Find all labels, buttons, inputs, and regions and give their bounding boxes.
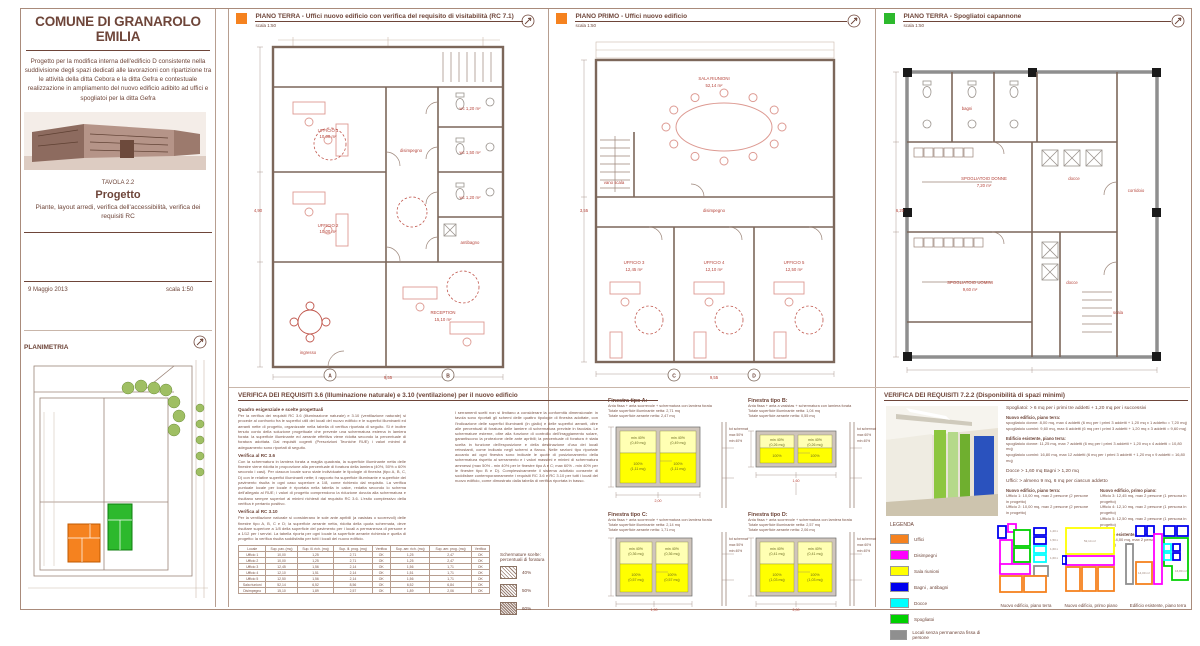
finestra-d-section: tot schermatura max 60% min 40%	[842, 528, 876, 610]
svg-text:52,14 m²: 52,14 m²	[1084, 539, 1096, 543]
svg-text:min 40%: min 40%	[629, 547, 644, 551]
mini-plan-1-drawing: 1,20 m²1,50 m²1,60 m²1,60 m²	[994, 522, 1058, 596]
svg-text:100%: 100%	[772, 454, 782, 458]
svg-text:UFFICIO 1: UFFICIO 1	[318, 128, 339, 133]
svg-text:(1,11 mq): (1,11 mq)	[670, 467, 685, 471]
svg-text:9,55: 9,55	[384, 375, 393, 380]
svg-text:(0,49 mq): (0,49 mq)	[630, 441, 645, 445]
svg-text:docce: docce	[1068, 176, 1080, 181]
svg-text:antibagno: antibagno	[461, 240, 480, 245]
svg-text:10,00 m²: 10,00 m²	[320, 134, 338, 139]
svg-text:min 40%: min 40%	[808, 547, 823, 551]
svg-text:16,80 m²: 16,80 m²	[1175, 569, 1187, 573]
tavola-block: TAVOLA 2.2 Progetto Piante, layout arred…	[24, 180, 212, 221]
svg-text:3,55: 3,55	[580, 208, 589, 213]
svg-text:vano scala: vano scala	[604, 180, 625, 185]
plan1-marker	[236, 13, 247, 24]
svg-text:12,50 m²: 12,50 m²	[786, 267, 804, 272]
svg-text:RECEPTION: RECEPTION	[430, 310, 455, 315]
legend-items: UfficiDisimpegniSala riunioniBagni , ant…	[890, 534, 990, 640]
svg-text:tot schermatura: tot schermatura	[857, 427, 876, 431]
schermatura-item: 60%	[500, 602, 600, 615]
verifica-722-title: VERIFICA DEI REQUISITI 7.2.2 (Disponibil…	[884, 392, 1188, 401]
plan3-drawing: bagniSPOGLIATOIO DONNE7,20 m²docceSPOGLI…	[882, 32, 1194, 384]
legend-swatch	[890, 534, 909, 544]
sheet-title: Progetto	[24, 189, 212, 201]
b1: Ufficio 3: 12,45 mq, max 2 persone (1 pe…	[1100, 493, 1188, 505]
svg-text:9,60 m²: 9,60 m²	[963, 287, 978, 292]
svg-text:15,10 m²: 15,10 m²	[435, 317, 453, 322]
svg-text:wc 1,20 m²: wc 1,20 m²	[459, 195, 481, 200]
intro-text: Per la verifica dei requisiti RC 3.6 (il…	[238, 413, 406, 450]
legend-item: Uffici	[890, 534, 990, 544]
svg-text:6,20: 6,20	[896, 208, 905, 213]
plan2-marker	[556, 13, 567, 24]
svg-text:100%: 100%	[810, 573, 820, 577]
divider-mid2	[875, 9, 876, 607]
legend-title: LEGENDA	[890, 522, 990, 528]
divider-left	[228, 9, 229, 607]
svg-text:UFFICIO 3: UFFICIO 3	[624, 260, 645, 265]
a2: Ufficio 2: 10,00 mq, max 2 persone (2 pe…	[1006, 504, 1092, 516]
plan1-drawing: A B UFFICIO 110,00 m²UFFICIO 210,00 m²di…	[238, 32, 544, 384]
svg-text:100%: 100%	[633, 462, 643, 466]
verifica-table-body: Ufficio 110,001,252,71OK1,252,47OKUffici…	[239, 552, 490, 594]
plan1-title: PIANO TERRA - Uffici nuovo edificio con …	[255, 13, 523, 22]
svg-text:(0,57 mq): (0,57 mq)	[664, 578, 679, 582]
svg-text:12,45 m²: 12,45 m²	[626, 267, 644, 272]
svg-text:wc 1,20 m²: wc 1,20 m²	[459, 106, 481, 111]
project-description: Progetto per la modifica interna dell'ed…	[24, 57, 212, 103]
svg-text:bagni: bagni	[962, 106, 973, 111]
mini-plan-1-caption: Nuovo edificio, piano terra	[994, 603, 1058, 608]
legend-swatch	[890, 550, 909, 560]
finestra-c-section: tot schermatura max 50% min 40%	[714, 528, 748, 610]
plan1-scale: scala 1:50	[255, 23, 523, 28]
svg-text:max 50%: max 50%	[729, 543, 743, 547]
svg-text:UFFICIO 5: UFFICIO 5	[784, 260, 805, 265]
intro-heading: Quadro esigenziale e scelte progettuali	[238, 407, 406, 412]
svg-text:(0,26 mq): (0,26 mq)	[769, 443, 784, 447]
svg-text:max 50%: max 50%	[729, 433, 743, 437]
finestra-c-diagram: min 40% (0,36 mq) 100% (0,57 mq) min 40%…	[608, 536, 708, 614]
north-arrow-icon	[1170, 13, 1186, 29]
svg-text:52,14 m²: 52,14 m²	[706, 83, 724, 88]
tavola-label: TAVOLA 2.2	[24, 180, 212, 186]
svg-text:docce: docce	[1066, 280, 1078, 285]
verifica-table-wrap: LocaleSup. pav. (mq)Sup. ill. rich. (mq)…	[238, 545, 490, 594]
plan3-header: PIANO TERRA - Spogliatoi capannone scala…	[884, 13, 1186, 32]
mini-plan-3-caption: Edificio esistente, piano terra	[1124, 603, 1192, 608]
plan3-title: PIANO TERRA - Spogliatoi capannone	[903, 13, 1171, 22]
svg-text:1,20 m²: 1,20 m²	[1050, 529, 1058, 533]
svg-text:min 40%: min 40%	[665, 547, 680, 551]
svg-text:100%: 100%	[673, 462, 683, 466]
svg-text:min 40%: min 40%	[770, 438, 785, 442]
plan2-drawing: C D SALA RIUNIONI52,14 m²vano scalaUFFIC…	[554, 32, 874, 384]
b2: Ufficio 4: 12,10 mq, max 2 persone (1 pe…	[1100, 504, 1188, 516]
svg-text:min 40%: min 40%	[631, 436, 646, 440]
svg-text:UFFICIO 2: UFFICIO 2	[318, 223, 339, 228]
plan1-header: PIANO TERRA - Uffici nuovo edificio con …	[236, 13, 536, 32]
legend-swatch	[890, 566, 909, 576]
svg-text:disimpegno: disimpegno	[703, 208, 726, 213]
title-block: COMUNE DI GRANAROLO EMILIA Progetto per …	[24, 14, 212, 103]
legend-swatch	[890, 582, 909, 592]
rc36-heading: Verifica al RC 3.6	[238, 453, 406, 458]
e2: spogliatoio uomini: 16,80 mq, max 12 add…	[1006, 452, 1188, 464]
sheet-date: 9 Maggio 2013	[28, 287, 68, 293]
legend-item: Sala riunioni	[890, 566, 990, 576]
mini-plan-2: 52,14 m² Nuovo edificio, primo piano	[1062, 522, 1120, 608]
svg-text:(0,57 mq): (0,57 mq)	[628, 578, 643, 582]
e1: spogliatoio donne: 11,25 mq, max 7 addet…	[1006, 441, 1188, 453]
mini-plan-1: 1,20 m²1,50 m²1,60 m²1,60 m² Nuovo edifi…	[994, 522, 1058, 608]
mini-plan-3: 14,00 m²16,80 m² Edificio esistente, pia…	[1124, 522, 1192, 608]
svg-text:disimpegno: disimpegno	[400, 148, 423, 153]
mini-plan-2-drawing: 52,14 m²	[1062, 522, 1120, 596]
finestra-b-section: tot schermatura max 60% min 40%	[842, 418, 876, 513]
verifica-36-col1: Quadro esigenziale e scelte progettuali …	[238, 404, 406, 542]
plan2-title: PIANO PRIMO - Uffici nuovo edificio	[575, 13, 847, 22]
svg-text:min 40%: min 40%	[671, 436, 686, 440]
svg-text:UFFICIO 4: UFFICIO 4	[704, 260, 725, 265]
col2-text: I serramenti scelti non si limitano a co…	[455, 410, 598, 484]
svg-text:min 40%: min 40%	[770, 547, 785, 551]
schermatura-item: 50%	[500, 584, 600, 597]
svg-text:SPOGLIATOIO DONNE: SPOGLIATOIO DONNE	[961, 176, 1007, 181]
npt1: spogliatoio donne: 8,00 mq, max 4 addett…	[1006, 420, 1188, 426]
a1: Ufficio 1: 10,00 mq, max 2 persone (2 pe…	[1006, 493, 1092, 505]
svg-text:100%: 100%	[667, 573, 677, 577]
rc36-text: Con la schermatura in lamiera forata a m…	[238, 459, 406, 506]
svg-text:(1,03 mq): (1,03 mq)	[769, 578, 784, 582]
legend-item: Bagni , antibagni	[890, 582, 990, 592]
svg-text:100%: 100%	[810, 454, 820, 458]
svg-text:C: C	[672, 374, 676, 380]
legend-item: Locali senza permanenza fissa di persone	[890, 630, 990, 640]
svg-text:A: A	[328, 374, 332, 380]
plan3-scale: scala 1:50	[903, 23, 1171, 28]
svg-text:2,00: 2,00	[655, 499, 662, 503]
svg-text:1,90: 1,90	[651, 608, 658, 612]
legend-swatch	[890, 598, 909, 608]
svg-text:min 40%: min 40%	[857, 439, 870, 443]
finestra-a-section: tot schermatura max 50% min 40%	[714, 418, 748, 513]
legend-item: Docce	[890, 598, 990, 608]
legend-item: Disimpegni	[890, 550, 990, 560]
svg-text:14,00 m²: 14,00 m²	[1138, 571, 1150, 575]
divider-mid1	[548, 9, 549, 607]
svg-text:max 60%: max 60%	[857, 433, 871, 437]
finestra-d-diagram: min 40% (0,41 mq) 100% (1,03 mq) min 40%…	[748, 536, 844, 614]
svg-text:scala: scala	[1113, 310, 1124, 315]
finestra-b-diagram: min 40% (0,26 mq) 100% min 40% (0,26 mq)…	[748, 427, 844, 497]
svg-text:(0,41 mq): (0,41 mq)	[807, 552, 822, 556]
verifica-36-col2: I serramenti scelti non si limitano a co…	[455, 410, 598, 484]
svg-text:9,55: 9,55	[710, 375, 719, 380]
plan3-marker	[884, 13, 895, 24]
verifica-722-section: VERIFICA DEI REQUISITI 7.2.2 (Disponibil…	[884, 392, 1188, 401]
legend-swatch	[890, 630, 907, 640]
schermature-items: 40%50%60%	[500, 566, 600, 615]
svg-text:min 40%: min 40%	[808, 438, 823, 442]
north-arrow-icon	[520, 13, 536, 29]
npt2: spogliatoio uomini: 9,60 mq, max 6 addet…	[1006, 426, 1188, 432]
svg-text:(1,11 mq): (1,11 mq)	[630, 467, 645, 471]
svg-text:SPOGLIATOIO UOMINI: SPOGLIATOIO UOMINI	[947, 280, 993, 285]
svg-text:1,50 m²: 1,50 m²	[1050, 538, 1058, 542]
svg-text:corridoio: corridoio	[1128, 188, 1145, 193]
svg-text:min 40%: min 40%	[729, 439, 742, 443]
verifica-table: LocaleSup. pav. (mq)Sup. ill. rich. (mq)…	[238, 545, 490, 594]
building-render-image	[24, 112, 206, 170]
svg-text:(0,41 mq): (0,41 mq)	[769, 552, 784, 556]
docce-bagni: Docce > 1,60 mq Bagni > 1,20 mq	[1006, 469, 1188, 474]
north-arrow-icon	[192, 334, 208, 350]
municipality-title: COMUNE DI GRANAROLO EMILIA	[24, 14, 212, 44]
sheet-scale: scala 1:50	[166, 287, 193, 293]
svg-text:1,60: 1,60	[793, 479, 800, 483]
mini-plan-2-caption: Nuovo edificio, primo piano	[1062, 603, 1120, 608]
svg-text:100%: 100%	[631, 573, 641, 577]
svg-text:max 60%: max 60%	[857, 543, 871, 547]
svg-text:B: B	[446, 374, 450, 380]
svg-text:100%: 100%	[772, 573, 782, 577]
svg-text:(0,36 mq): (0,36 mq)	[664, 552, 679, 556]
interior-render-image	[886, 406, 998, 516]
rc310-text: Per la ventilazione naturale si consider…	[238, 515, 406, 541]
divider-bottom-band	[229, 387, 1190, 388]
svg-text:(0,49 mq): (0,49 mq)	[670, 441, 685, 445]
svg-text:(0,26 mq): (0,26 mq)	[807, 443, 822, 447]
planimetria-drawing	[24, 352, 212, 604]
svg-text:7,20 m²: 7,20 m²	[977, 183, 992, 188]
schermature-legend: Schermature scelte: percentuali di forat…	[500, 552, 600, 620]
plan2-header: PIANO PRIMO - Uffici nuovo edificio scal…	[556, 13, 862, 32]
north-arrow-icon	[846, 13, 862, 29]
schermature-title2: percentuali di foratura	[500, 557, 600, 562]
divider-titleblock	[215, 9, 216, 607]
svg-text:12,10 m²: 12,10 m²	[706, 267, 724, 272]
plan2-scale: scala 1:50	[575, 23, 847, 28]
svg-text:min 40%: min 40%	[729, 549, 742, 553]
legend: LEGENDA UfficiDisimpegniSala riunioniBag…	[890, 522, 990, 646]
svg-text:wc 1,50 m²: wc 1,50 m²	[459, 150, 481, 155]
finestra-a-diagram: min 40% (0,49 mq) 100% (1,11 mq) min 40%…	[608, 423, 708, 505]
sheet-subtitle: Piante, layout arredi, verifica dell'acc…	[24, 203, 212, 221]
svg-text:tot schermatura: tot schermatura	[729, 537, 748, 541]
svg-text:(1,03 mq): (1,03 mq)	[807, 578, 822, 582]
mini-plan-3-drawing: 14,00 m²16,80 m²	[1124, 522, 1192, 596]
svg-text:10,00 m²: 10,00 m²	[320, 229, 338, 234]
verifica-36-title: VERIFICA DEI REQUISITI 3.6 (Illuminazion…	[238, 392, 658, 401]
schermatura-item: 40%	[500, 566, 600, 579]
spogliatoi-intro: Spogliatoi: > 6 mq per i primi tre addet…	[1006, 406, 1188, 411]
svg-text:ingresso: ingresso	[300, 350, 317, 355]
svg-text:(0,36 mq): (0,36 mq)	[628, 552, 643, 556]
svg-text:D: D	[752, 374, 756, 380]
rc310-heading: Verifica al RC 3.10	[238, 509, 406, 514]
svg-text:tot schermatura: tot schermatura	[857, 537, 876, 541]
svg-text:1,60 m²: 1,60 m²	[1050, 547, 1058, 551]
svg-text:SALA RIUNIONI: SALA RIUNIONI	[698, 76, 729, 81]
svg-text:min 40%: min 40%	[857, 549, 870, 553]
svg-text:1,60 m²: 1,60 m²	[1050, 556, 1058, 560]
svg-text:tot schermatura: tot schermatura	[729, 427, 748, 431]
svg-text:2,00: 2,00	[793, 608, 800, 612]
svg-text:4,90: 4,90	[254, 208, 263, 213]
